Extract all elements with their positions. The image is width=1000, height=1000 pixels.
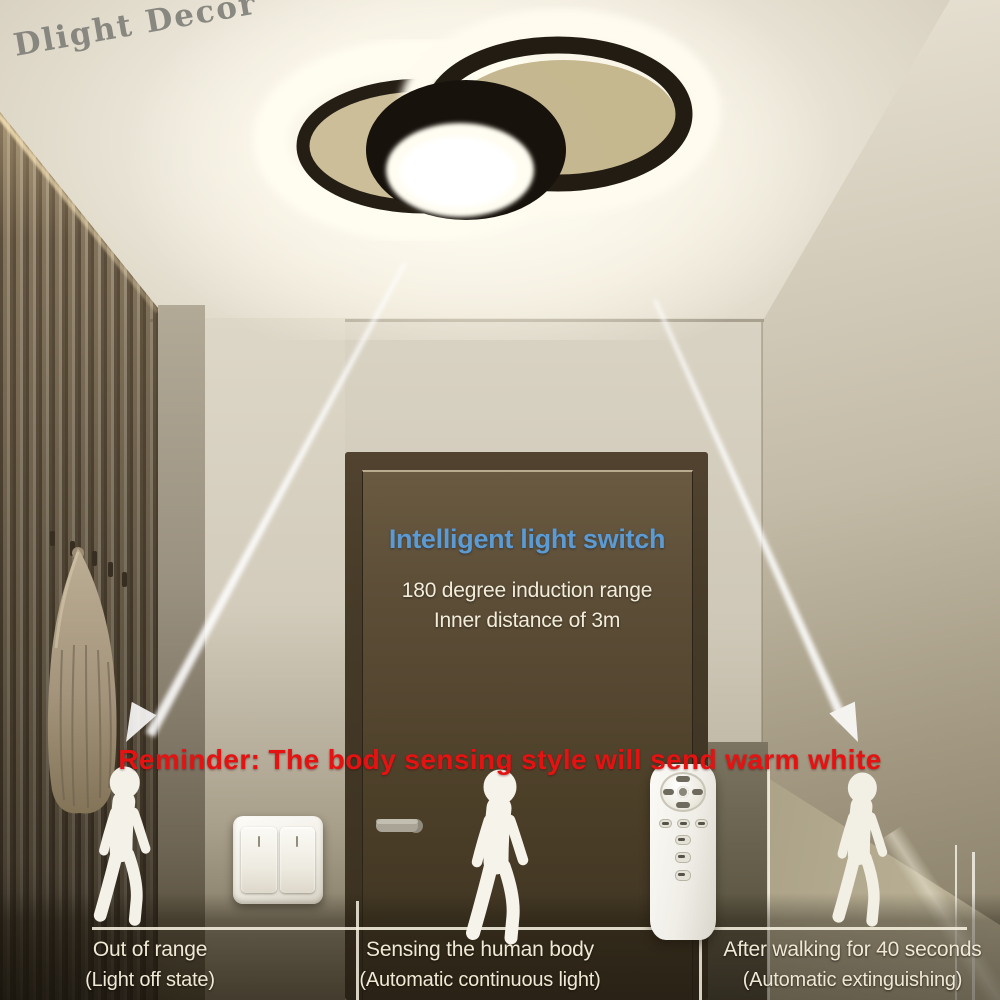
door-sign-title: Intelligent light switch <box>352 524 702 555</box>
caption-subtitle: (Automatic continuous light) <box>325 969 635 992</box>
caption-subtitle: (Light off state) <box>25 969 275 992</box>
remote-button-row <box>659 819 708 828</box>
caption-out-of-range: Out of range (Light off state) <box>25 938 275 992</box>
remote-off-button <box>675 870 691 881</box>
switch-rocker-left <box>241 827 277 893</box>
remote-center-button <box>677 786 689 798</box>
door-sign-range: 180 degree induction range <box>352 579 702 603</box>
wall-corner-line <box>761 322 763 752</box>
reminder-text: Reminder: The body sensing style will se… <box>0 744 1000 776</box>
remote-button <box>659 819 672 828</box>
remote-right-button <box>692 789 703 795</box>
caption-subtitle: (Automatic extinguishing) <box>705 969 1000 992</box>
remote-control-icon <box>650 764 716 940</box>
remote-up-button <box>676 776 690 782</box>
caption-title: Sensing the human body <box>325 938 635 962</box>
remote-button <box>695 819 708 828</box>
product-photo-hallway: Intelligent light switch 180 degree indu… <box>0 0 1000 1000</box>
remote-button <box>677 819 690 828</box>
horizontal-divider-line <box>92 927 967 930</box>
door-sign: Intelligent light switch 180 degree indu… <box>352 524 702 633</box>
caption-after-walking: After walking for 40 seconds (Automatic … <box>705 938 1000 992</box>
remote-left-button <box>663 789 674 795</box>
remote-button <box>675 835 691 845</box>
wall-switch-icon <box>233 816 323 904</box>
remote-down-button <box>676 802 690 808</box>
lamp-glow <box>130 0 830 340</box>
switch-rocker-right <box>280 827 316 893</box>
caption-title: After walking for 40 seconds <box>705 938 1000 962</box>
remote-dpad <box>660 772 706 812</box>
remote-on-button <box>675 852 691 863</box>
door-sign-distance: Inner distance of 3m <box>352 609 702 633</box>
caption-title: Out of range <box>25 938 275 962</box>
caption-sensing: Sensing the human body (Automatic contin… <box>325 938 635 992</box>
